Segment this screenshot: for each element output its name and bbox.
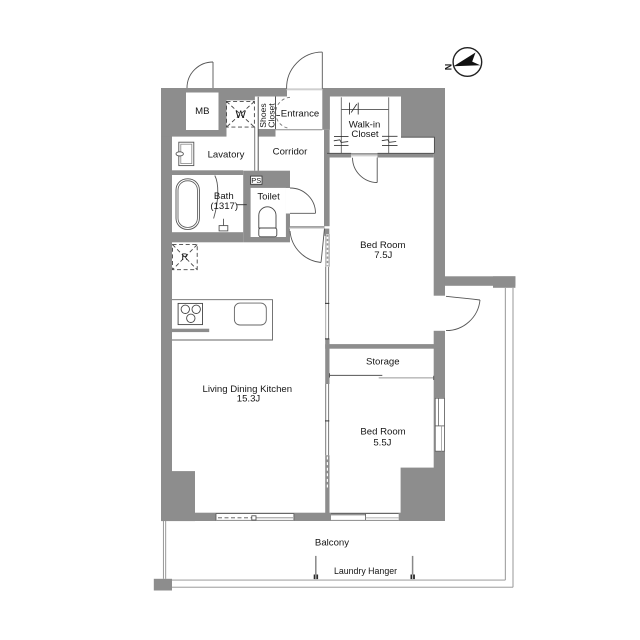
svg-text:Corridor: Corridor	[273, 146, 308, 157]
svg-text:Closet: Closet	[266, 103, 276, 128]
svg-text:5.5J: 5.5J	[373, 437, 391, 448]
svg-text:7.5J: 7.5J	[374, 250, 392, 261]
svg-text:Closet: Closet	[351, 129, 379, 140]
svg-text:Lavatory: Lavatory	[208, 150, 245, 161]
svg-text:Laundry Hanger: Laundry Hanger	[334, 566, 397, 576]
svg-text:Storage: Storage	[366, 356, 400, 367]
svg-text:15.3J: 15.3J	[237, 394, 261, 405]
svg-text:Entrance: Entrance	[281, 108, 319, 119]
svg-text:MB: MB	[195, 106, 209, 117]
svg-text:Balcony: Balcony	[315, 537, 349, 548]
svg-text:PS: PS	[251, 176, 261, 185]
svg-text:Bed Room: Bed Room	[360, 426, 405, 437]
svg-text:N: N	[444, 64, 454, 71]
svg-text:W: W	[236, 109, 247, 121]
svg-text:(1317): (1317)	[210, 201, 238, 212]
svg-text:R: R	[182, 252, 189, 262]
svg-text:Toilet: Toilet	[257, 191, 280, 202]
